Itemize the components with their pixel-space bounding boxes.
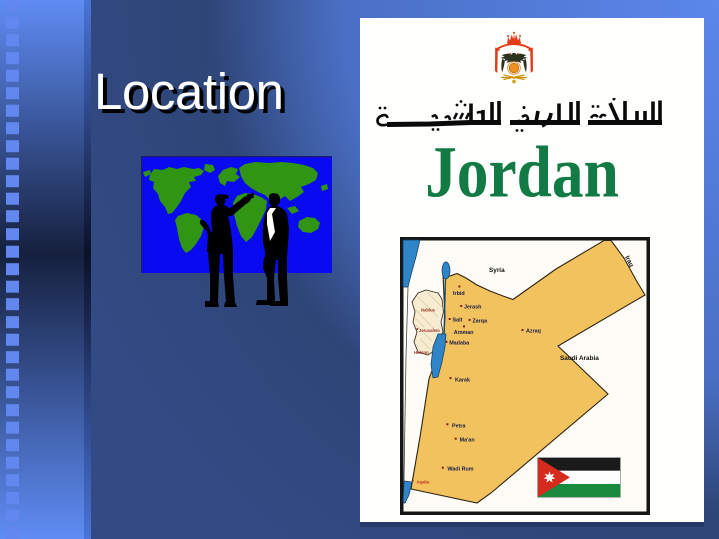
svg-text:Syria: Syria (489, 267, 505, 274)
svg-text:Saudi Arabia: Saudi Arabia (560, 355, 599, 362)
svg-text:Ma'an: Ma'an (460, 438, 475, 444)
svg-text:Amman: Amman (454, 330, 474, 336)
svg-text:Madaba: Madaba (449, 341, 470, 347)
svg-text:Irbid: Irbid (453, 291, 465, 297)
svg-text:Salt: Salt (453, 318, 463, 324)
svg-text:Karak: Karak (455, 378, 470, 384)
svg-text:Jerash: Jerash (464, 305, 481, 311)
svg-text:Jerusalem: Jerusalem (419, 328, 440, 333)
svg-text:Hebron: Hebron (414, 350, 429, 355)
svg-text:Zarqa: Zarqa (472, 319, 488, 325)
svg-text:Nablus: Nablus (421, 308, 436, 313)
svg-text:Jordan: Jordan (425, 139, 619, 205)
svg-text:Petra: Petra (452, 424, 466, 430)
svg-text:Aqaba: Aqaba (417, 480, 430, 485)
svg-text:Azraq: Azraq (526, 329, 541, 335)
svg-text:Wadi Rum: Wadi Rum (447, 467, 473, 473)
